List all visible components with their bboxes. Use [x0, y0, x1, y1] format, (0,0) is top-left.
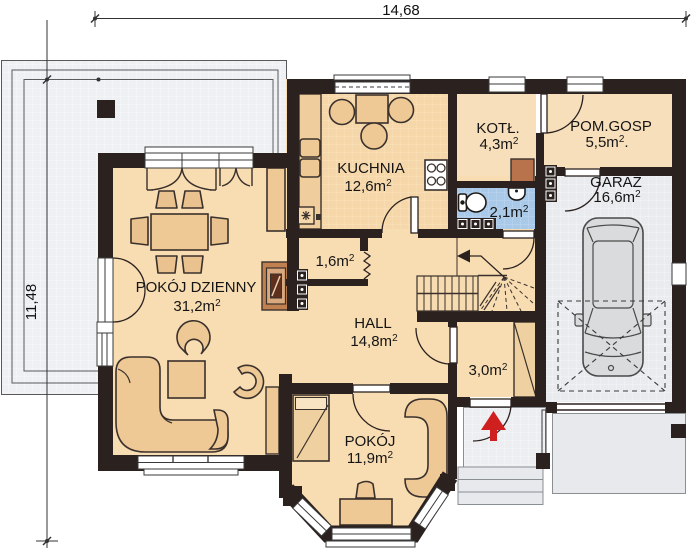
- svg-text:KOTŁ.: KOTŁ.: [476, 120, 519, 137]
- svg-text:16,6m2: 16,6m2: [593, 189, 641, 206]
- svg-text:KUCHNIA: KUCHNIA: [337, 160, 405, 177]
- svg-text:12,6m2: 12,6m2: [344, 178, 392, 195]
- svg-text:POKÓJ: POKÓJ: [345, 433, 396, 450]
- svg-text:11,9m2: 11,9m2: [347, 450, 394, 467]
- svg-text:14,68: 14,68: [382, 2, 420, 19]
- svg-text:HALL: HALL: [354, 315, 392, 332]
- svg-text:POM.GOSP: POM.GOSP: [570, 118, 652, 135]
- svg-text:POKÓJ DZIENNY: POKÓJ DZIENNY: [136, 279, 257, 296]
- svg-text:14,8m2: 14,8m2: [350, 333, 398, 350]
- svg-text:11,48: 11,48: [23, 284, 40, 320]
- svg-text:31,2m2: 31,2m2: [173, 298, 221, 315]
